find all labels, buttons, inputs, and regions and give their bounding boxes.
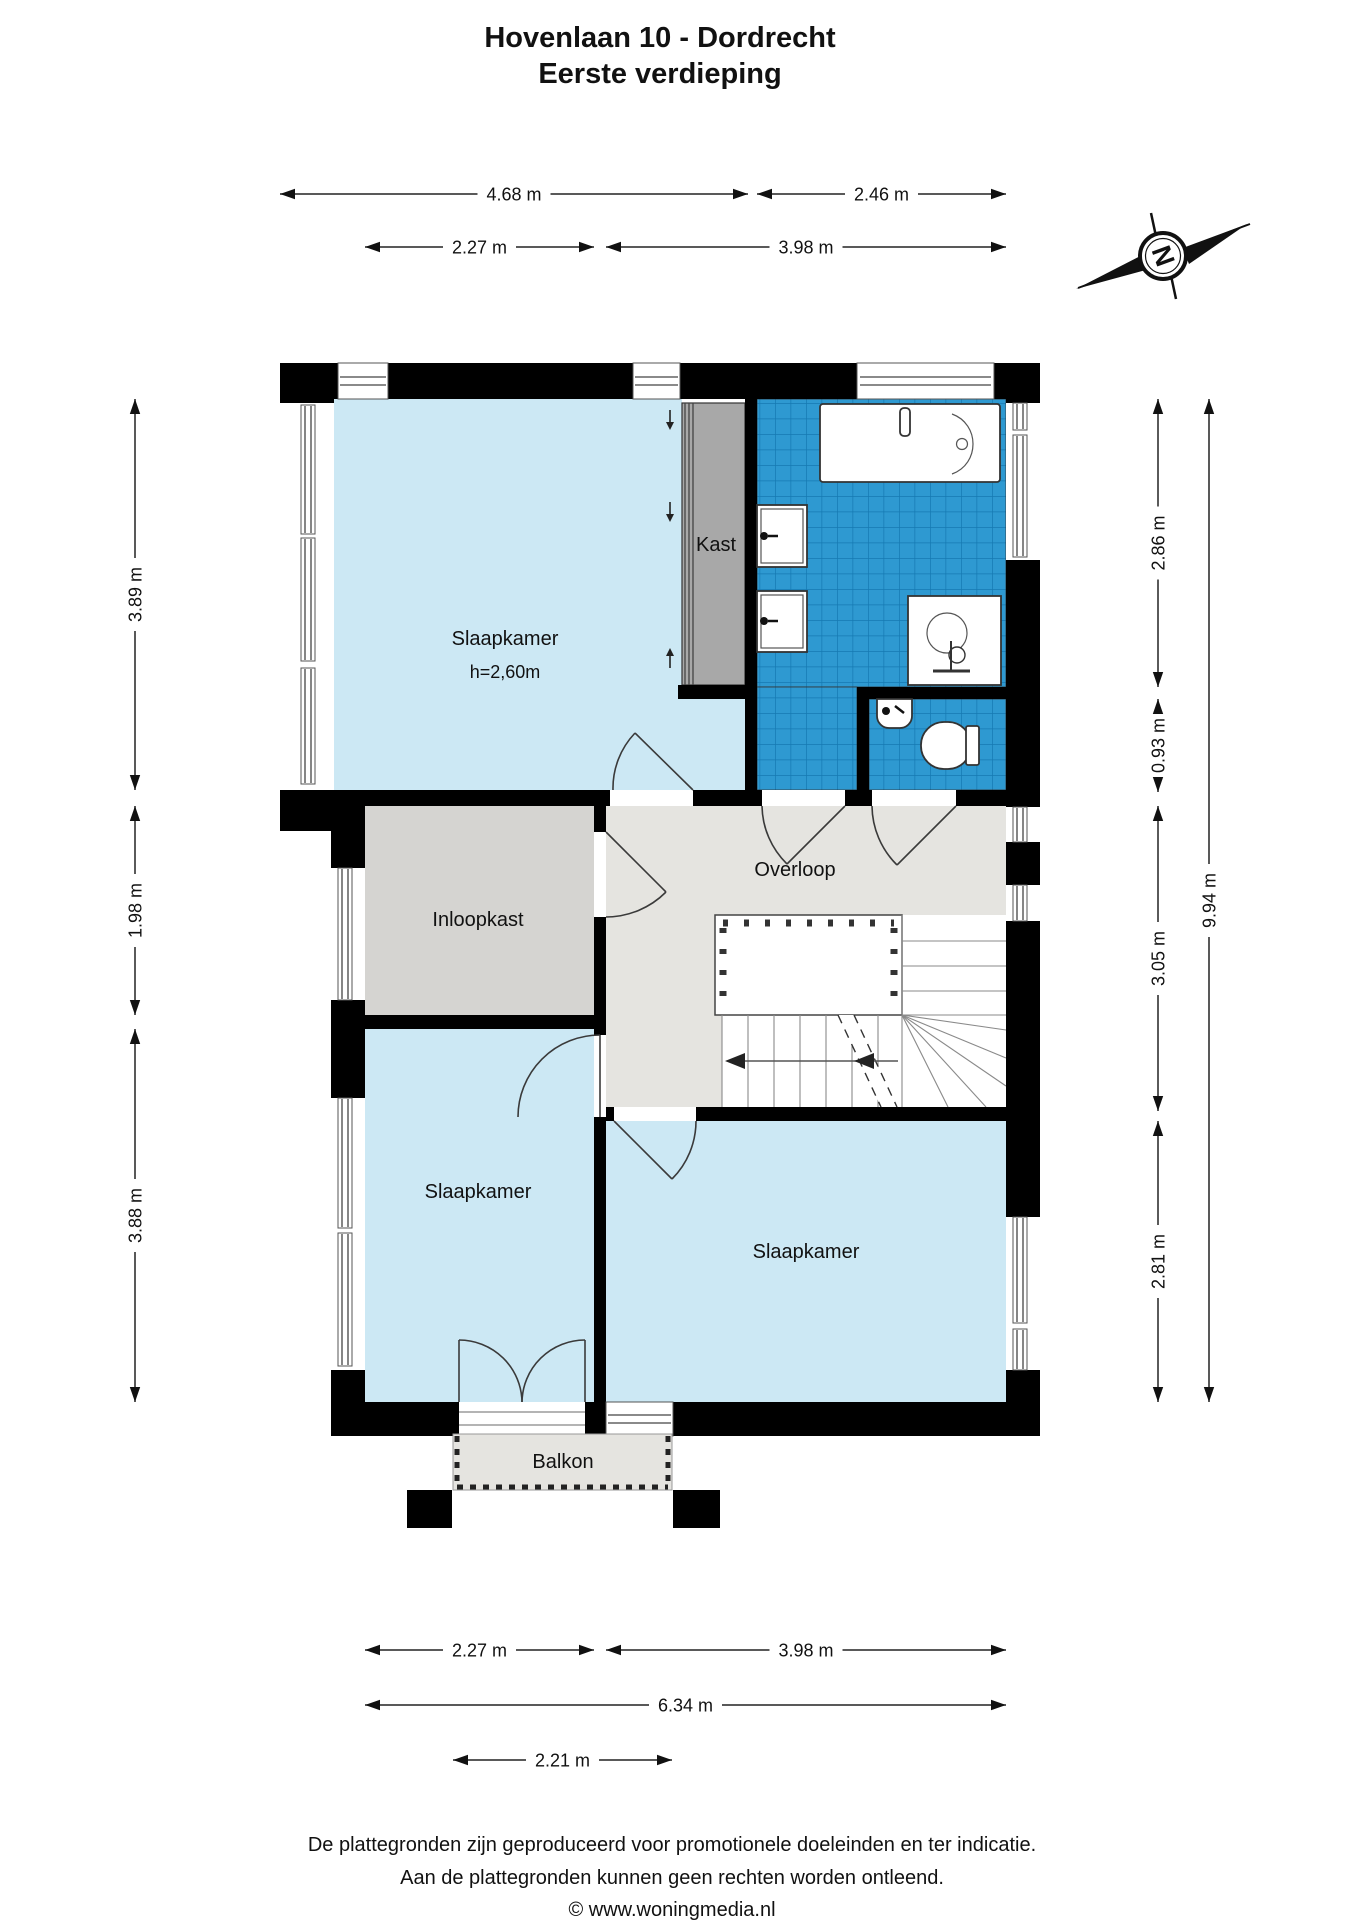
footer-disclaimer-2: Aan de plattegronden kunnen geen rechten… <box>400 1867 944 1889</box>
page-subtitle: Eerste verdieping <box>538 58 781 90</box>
wall-mid-band <box>693 790 762 806</box>
wall-right-4 <box>1006 921 1040 1217</box>
window-bathroom-top <box>857 363 994 399</box>
balcony-pillar-right <box>673 1490 720 1528</box>
footer-disclaimer-1: De plattegronden zijn geproduceerd voor … <box>308 1834 1036 1856</box>
dimension-b2: 3.98 m <box>606 1641 1006 1661</box>
wall-bath-wc-horizontal <box>857 687 1006 699</box>
dimension-l2: 1.98 m <box>126 806 146 1015</box>
room-slaapkamer-bottomleft <box>365 1029 594 1402</box>
sink-2-faucet <box>760 617 768 625</box>
toilet-bowl <box>921 722 971 769</box>
window-left-bedroom-top <box>301 405 315 784</box>
label-slaapkamer-bottomright: Slaapkamer <box>753 1241 860 1263</box>
dimension-b1: 2.27 m <box>365 1641 594 1661</box>
wall-bottom <box>585 1402 606 1436</box>
dimension-label: 9.94 m <box>1200 873 1220 928</box>
label-balkon: Balkon <box>532 1451 593 1473</box>
wall-stairs-bottom <box>696 1107 1006 1121</box>
dimension-r1: 2.86 m <box>1149 399 1169 687</box>
dimension-l3: 3.88 m <box>126 1029 146 1402</box>
balcony-pillar-left <box>407 1490 452 1528</box>
dimension-t3: 2.27 m <box>365 238 594 258</box>
dimension-label: 6.34 m <box>658 1696 713 1716</box>
dimension-b3: 6.34 m <box>365 1696 1006 1716</box>
dimension-label: 3.98 m <box>778 238 833 258</box>
wall-mid-band <box>845 790 872 806</box>
page-title: Hovenlaan 10 - Dordrecht <box>484 22 836 54</box>
footer-copyright: © www.woningmedia.nl <box>568 1899 775 1920</box>
wall-bottom <box>673 1402 1040 1436</box>
wall-right-5 <box>1006 1370 1040 1436</box>
wall-bath-wc-vertical <box>857 699 869 790</box>
door-opening-inloopkast <box>594 832 606 917</box>
wall-mid-vertical <box>594 806 606 832</box>
label-kast: Kast <box>696 534 736 556</box>
wall-mid-vertical <box>594 1117 606 1402</box>
rooms <box>334 399 1006 1402</box>
dimension-label: 2.81 m <box>1149 1234 1169 1289</box>
label-overloop: Overloop <box>754 859 835 881</box>
wall-right-2 <box>1006 560 1040 807</box>
dimension-label: 0.93 m <box>1149 718 1169 773</box>
wall-inloopkast-bedroom <box>331 1015 606 1029</box>
door-opening-wc <box>872 790 956 806</box>
wall-left-lower-2 <box>331 1000 365 1098</box>
bathtub-faucet <box>900 408 910 436</box>
dimension-t4: 3.98 m <box>606 238 1006 258</box>
window-bathroom-right <box>1013 403 1027 557</box>
dimension-l1: 3.89 m <box>126 399 146 790</box>
door-opening-balcony <box>459 1402 585 1436</box>
dimension-label: 3.89 m <box>126 567 146 622</box>
door-opening-bedroom-top <box>610 790 693 806</box>
wc-sink-drain <box>882 707 890 715</box>
window-inloopkast <box>338 868 352 1000</box>
floorplan-page: N 4.68 m2.46 m2.27 m3.98 m3.89 m1.98 m3.… <box>0 0 1358 1920</box>
wall-right-1 <box>1006 363 1040 403</box>
dimension-r3: 3.05 m <box>1149 806 1169 1111</box>
window-right-bedroom <box>1013 1217 1027 1370</box>
compass: N <box>1076 213 1250 299</box>
door-opening-bathroom <box>762 790 845 806</box>
sink-1-faucet <box>760 532 768 540</box>
dimension-r5: 9.94 m <box>1200 399 1220 1402</box>
door-opening-bedroom-right <box>614 1107 696 1121</box>
dimension-t2: 2.46 m <box>757 185 1006 205</box>
wall-left-lower-1 <box>331 806 365 868</box>
dimension-label: 2.46 m <box>854 185 909 205</box>
window-bottom-right-bedroom <box>606 1402 673 1436</box>
dimension-r4: 2.81 m <box>1149 1121 1169 1402</box>
wall-kast-cap <box>678 685 757 699</box>
label-slaapkamer-topleft: Slaapkamer <box>452 628 559 650</box>
floorplan-svg: N 4.68 m2.46 m2.27 m3.98 m3.89 m1.98 m3.… <box>0 0 1358 1920</box>
dimension-label: 4.68 m <box>486 185 541 205</box>
dimension-b4: 2.21 m <box>453 1751 672 1771</box>
wall-corner-topleft <box>280 363 334 403</box>
dimension-label: 1.98 m <box>126 883 146 938</box>
room-bathroom-tiles-lower <box>757 687 857 790</box>
compass-wing-northeast <box>1183 224 1247 264</box>
wall-mid-band <box>280 790 610 806</box>
dimension-t1: 4.68 m <box>280 185 748 205</box>
label-ceiling-height: h=2,60m <box>470 662 541 682</box>
wc-sink <box>877 699 912 728</box>
label-inloopkast: Inloopkast <box>432 909 524 931</box>
dimension-label: 2.27 m <box>452 1641 507 1661</box>
dimension-label: 3.05 m <box>1149 931 1169 986</box>
wall-kast-bathroom <box>745 399 757 790</box>
wall-bottom <box>331 1402 459 1436</box>
stairwell <box>715 915 1006 1107</box>
room-slaapkamer-topleft-strip <box>682 699 745 790</box>
dimension-label: 3.98 m <box>778 1641 833 1661</box>
wall-right-3 <box>1006 842 1040 885</box>
stair-winder-area <box>902 915 1006 1107</box>
window-top-1 <box>338 363 388 399</box>
dimension-label: 3.88 m <box>126 1188 146 1243</box>
dimension-label: 2.86 m <box>1149 515 1169 570</box>
dimension-r2: 0.93 m <box>1149 699 1169 792</box>
stair-void <box>715 915 902 1015</box>
dimension-label: 2.21 m <box>535 1751 590 1771</box>
toilet-tank <box>966 726 979 765</box>
window-top-2 <box>633 363 680 399</box>
room-slaapkamer-topleft <box>334 399 682 790</box>
label-slaapkamer-bottomleft: Slaapkamer <box>425 1181 532 1203</box>
dimension-label: 2.27 m <box>452 238 507 258</box>
